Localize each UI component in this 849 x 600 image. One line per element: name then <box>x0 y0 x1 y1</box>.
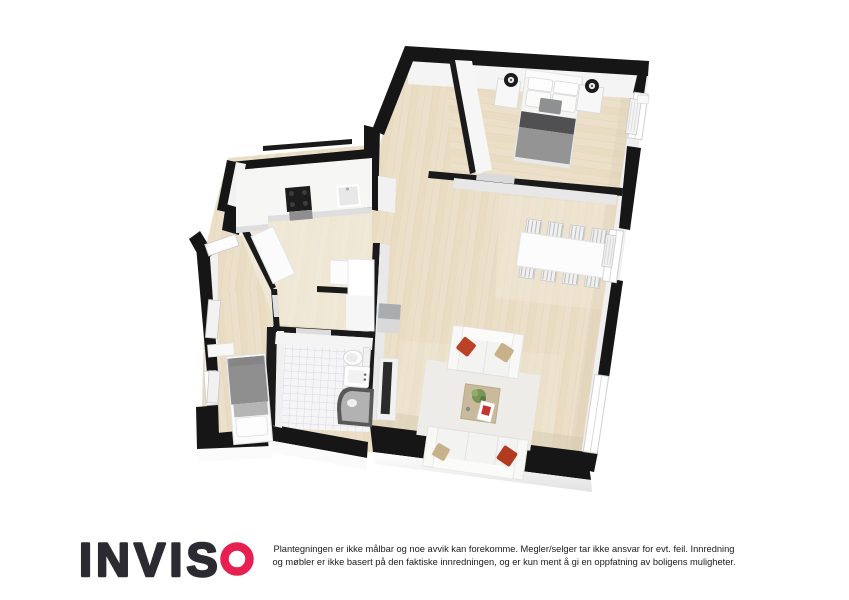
svg-text:INVIS: INVIS <box>79 533 222 586</box>
svg-text:og møbler er ikke basert på de: og møbler er ikke basert på den faktiske… <box>272 557 735 567</box>
svg-text:Plantegningen er ikke målbar o: Plantegningen er ikke målbar og noe avvi… <box>274 544 735 554</box>
